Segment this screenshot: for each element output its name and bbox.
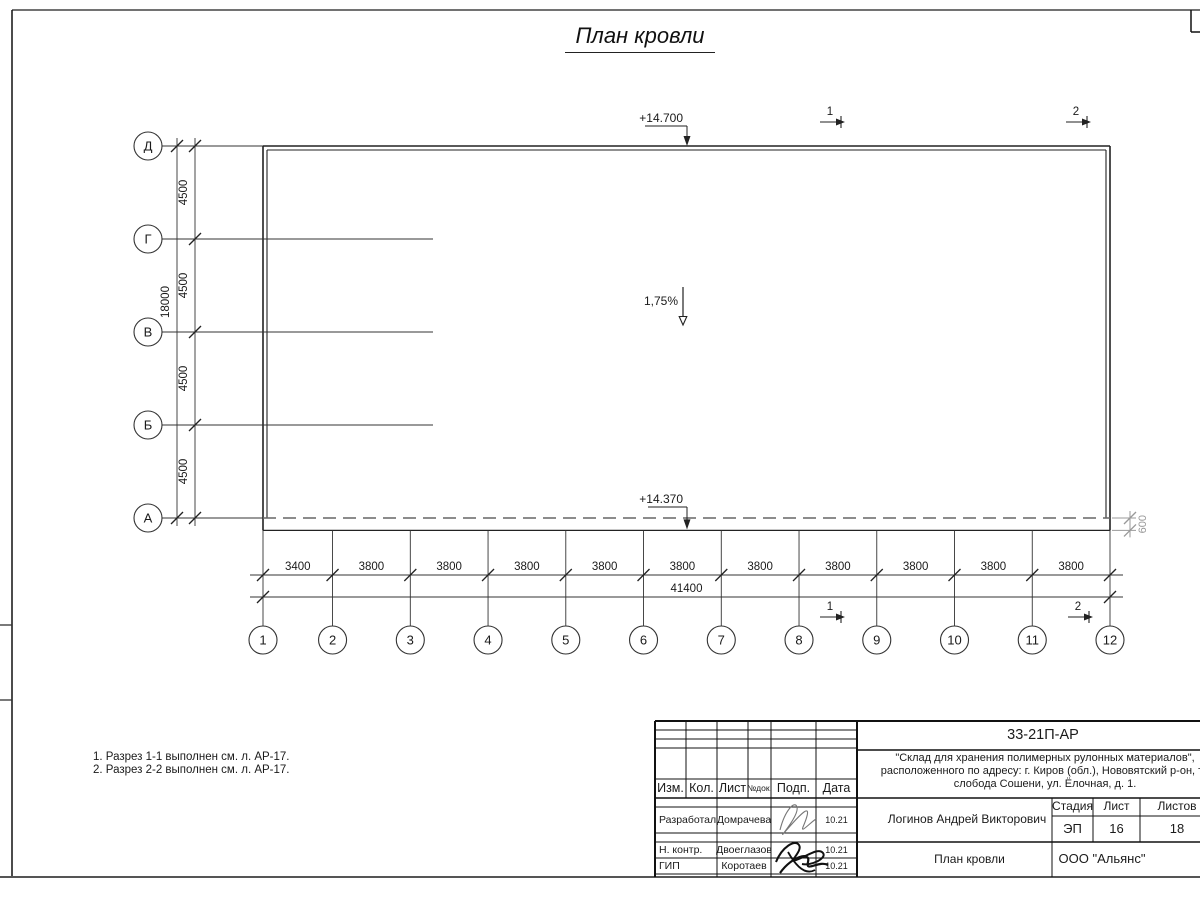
tb-date-ncontrol: 10.21	[816, 842, 857, 858]
tb-col-data: Дата	[816, 779, 857, 798]
col-dim-label: 3400	[285, 561, 311, 573]
col-marker-12-label: 12	[1103, 633, 1117, 648]
tb-sheet-value: 16	[1093, 816, 1140, 842]
row-dim-label: 4500	[178, 459, 190, 485]
tb-role-developer: Разработал	[659, 807, 717, 833]
tb-stage-value: ЭП	[1052, 816, 1093, 842]
tb-col-list: Лист	[717, 779, 748, 798]
col-marker-6-label: 6	[640, 633, 647, 648]
page-title-text: План кровли	[565, 23, 714, 53]
col-marker-4-label: 4	[484, 633, 491, 648]
tb-date-developer: 10.21	[816, 807, 857, 833]
section-1-top-label: 1	[827, 106, 833, 118]
col-dim-label: 3800	[592, 561, 618, 573]
tb-project-line-2: расположенного по адресу: г. Киров (обл.…	[859, 764, 1200, 778]
slope-label: 1,75%	[644, 294, 678, 308]
tb-role-gip: ГИП	[659, 858, 717, 874]
col-marker-3-label: 3	[407, 633, 414, 648]
row-marker-Г-label: Г	[144, 232, 151, 247]
row-marker-Д-label: Д	[144, 139, 153, 154]
col-total-dim-label: 41400	[671, 583, 703, 595]
col-dim-label: 3800	[903, 561, 929, 573]
note-line-1: 1. Разрез 1-1 выполнен см. л. АР-17.	[93, 751, 413, 764]
note-line-2: 2. Разрез 2-2 выполнен см. л. АР-17.	[93, 764, 413, 777]
col-marker-5-label: 5	[562, 633, 569, 648]
row-total-dim-label: 18000	[160, 286, 172, 318]
row-dim-label: 4500	[178, 180, 190, 206]
elevation-top-label: +14.700	[639, 111, 683, 125]
tb-col-kol: Кол.	[686, 779, 717, 798]
row-dim-label: 4500	[178, 273, 190, 299]
tb-company: ООО "Альянс"	[1052, 842, 1152, 877]
tb-name-developer: Домрачева	[717, 807, 771, 833]
col-dim-label: 3800	[825, 561, 851, 573]
overhang-dim-label: 600	[1137, 515, 1149, 533]
tb-drawing-name: План кровли	[857, 842, 1082, 877]
tb-sheets-header: Листов	[1140, 798, 1200, 816]
tb-sheet-header: Лист	[1093, 798, 1140, 816]
tb-project-line-1: "Склад для хранения полимерных рулонных …	[859, 751, 1200, 765]
col-marker-8-label: 8	[795, 633, 802, 648]
slope-arrow-head	[679, 317, 687, 326]
elevation-bottom-arrow	[684, 519, 691, 529]
col-dim-label: 3800	[359, 561, 385, 573]
col-dim-label: 3800	[436, 561, 462, 573]
tb-doc-number: 33-21П-АР	[857, 721, 1200, 750]
section-1-bottom-label: 1	[827, 601, 833, 613]
col-marker-10-label: 10	[947, 633, 961, 648]
col-marker-1-label: 1	[259, 633, 266, 648]
col-marker-9-label: 9	[873, 633, 880, 648]
drawing-sheet: ДГВБА45004500450045001800012345678910111…	[0, 0, 1200, 900]
tb-col-ndok: №док.	[748, 779, 771, 798]
section-2-bottom-label: 2	[1075, 601, 1081, 613]
col-dim-label: 3800	[1058, 561, 1084, 573]
row-marker-А-label: А	[144, 511, 153, 526]
tb-role-ncontrol: Н. контр.	[659, 842, 717, 858]
tb-date-gip: 10.21	[816, 858, 857, 874]
col-marker-7-label: 7	[718, 633, 725, 648]
page-title: План кровли	[400, 22, 880, 54]
tb-col-podp: Подп.	[771, 779, 816, 798]
row-marker-В-label: В	[144, 325, 153, 340]
col-dim-label: 3800	[670, 561, 696, 573]
col-marker-2-label: 2	[329, 633, 336, 648]
tb-chief-name: Логинов Андрей Викторович	[857, 798, 1077, 842]
col-marker-11-label: 11	[1026, 633, 1040, 648]
tb-project-line-3: слобода Сошени, ул. Ёлочная, д. 1.	[859, 777, 1200, 791]
section-2-top-label: 2	[1073, 106, 1079, 118]
col-dim-label: 3800	[747, 561, 773, 573]
elevation-bottom-label: +14.370	[639, 492, 683, 506]
elevation-top-arrow	[684, 136, 691, 146]
tb-stage-header: Стадия	[1052, 798, 1093, 816]
col-dim-label: 3800	[514, 561, 540, 573]
row-dim-label: 4500	[178, 366, 190, 392]
row-marker-Б-label: Б	[144, 418, 153, 433]
signature-developer	[780, 805, 816, 835]
tb-col-izm: Изм.	[655, 779, 686, 798]
tb-name-ncontrol: Двоеглазов	[717, 842, 771, 858]
col-dim-label: 3800	[981, 561, 1007, 573]
tb-name-gip: Коротаев	[717, 858, 771, 874]
tb-sheets-value: 18	[1140, 816, 1200, 842]
